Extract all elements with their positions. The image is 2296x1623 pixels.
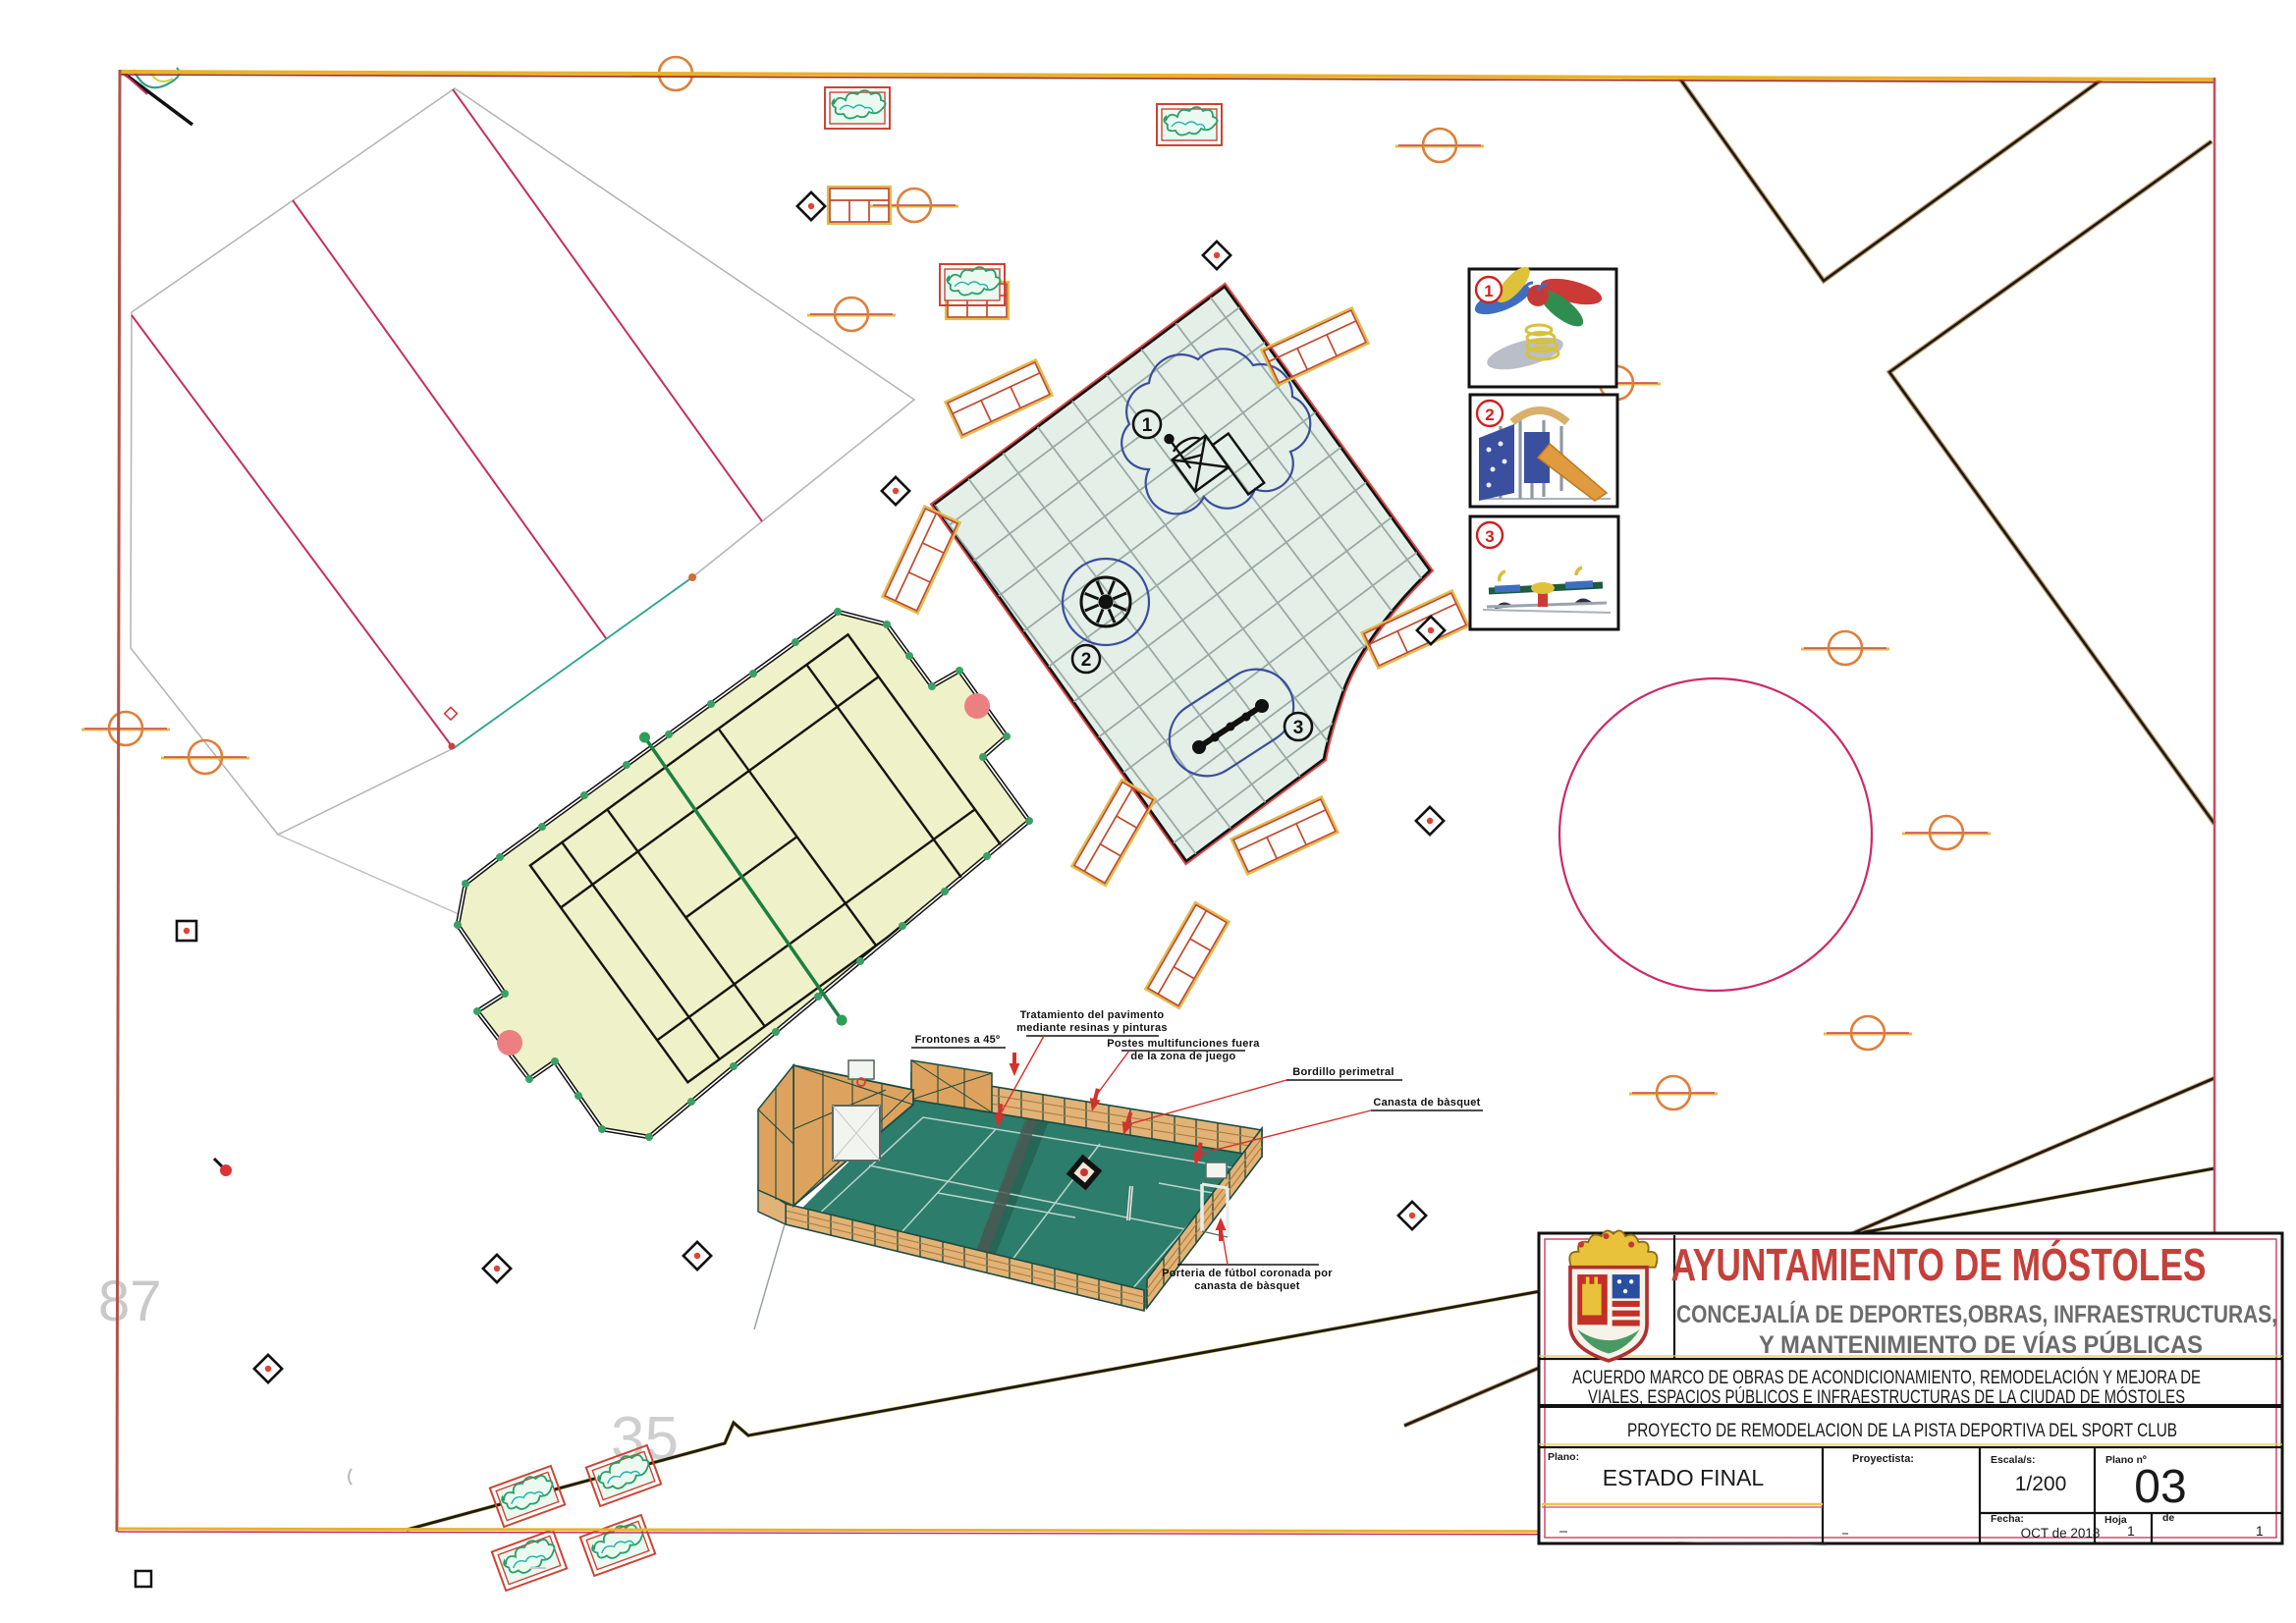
svg-text:Frontones a 45º: Frontones a 45º — [915, 1034, 1001, 1046]
svg-text:87: 87 — [98, 1270, 162, 1333]
svg-text:Bordillo perimetral: Bordillo perimetral — [1292, 1066, 1394, 1078]
svg-text:canasta de bàsquet: canasta de bàsquet — [1194, 1280, 1300, 1292]
svg-text:Plano:: Plano: — [1548, 1451, 1579, 1463]
svg-text:Fecha:: Fecha: — [1991, 1513, 2024, 1525]
svg-text:3: 3 — [1485, 527, 1494, 546]
svg-text:Canasta de bàsquet: Canasta de bàsquet — [1373, 1097, 1480, 1109]
svg-text:ACUERDO MARCO DE OBRAS DE ACON: ACUERDO MARCO DE OBRAS DE ACONDICIONAMIE… — [1572, 1367, 2201, 1388]
svg-text:1: 1 — [1142, 415, 1153, 436]
svg-text:Escala/s:: Escala/s: — [1991, 1454, 2036, 1466]
svg-text:Hoja: Hoja — [2105, 1514, 2127, 1526]
svg-text:Porteria de fútbol coronada po: Porteria de fútbol coronada por — [1162, 1268, 1333, 1279]
svg-text:VIALES, ESPACIOS PÚBLICOS E IN: VIALES, ESPACIOS PÚBLICOS E INFRAESTRUCT… — [1588, 1386, 2185, 1408]
svg-text:Postes multifunciones fuera: Postes multifunciones fuera — [1107, 1038, 1260, 1050]
svg-text:Tratamiento del pavimento: Tratamiento del pavimento — [1020, 1009, 1165, 1021]
svg-text:1: 1 — [2127, 1523, 2135, 1539]
svg-text:de la zona de juego: de la zona de juego — [1130, 1051, 1235, 1062]
svg-text:Y MANTENIMIENTO DE VÍAS PÚBLIC: Y MANTENIMIENTO DE VÍAS PÚBLICAS — [1759, 1329, 2203, 1359]
svg-text:ESTADO FINAL: ESTADO FINAL — [1603, 1465, 1765, 1490]
svg-text:03: 03 — [2134, 1461, 2186, 1513]
svg-text:CONCEJALÍA DE DEPORTES,OBRAS,: CONCEJALÍA DE DEPORTES,OBRAS, INFRAESTRU… — [1676, 1300, 2277, 1328]
svg-text:AYUNTAMIENTO DE MÓSTOLES: AYUNTAMIENTO DE MÓSTOLES — [1671, 1239, 2207, 1290]
svg-text:3: 3 — [1293, 718, 1304, 738]
svg-text:PROYECTO DE REMODELACION DE LA: PROYECTO DE REMODELACION DE LA PISTA DEP… — [1627, 1421, 2177, 1441]
svg-text:2: 2 — [1485, 406, 1494, 424]
svg-text:de: de — [2162, 1512, 2174, 1524]
svg-text:OCT de 2018: OCT de 2018 — [2021, 1526, 2101, 1541]
svg-text:1: 1 — [1484, 282, 1493, 300]
svg-text:1: 1 — [2256, 1523, 2264, 1539]
svg-text:mediante resinas y pinturas: mediante resinas y pinturas — [1016, 1022, 1168, 1034]
svg-text:Proyectista:: Proyectista: — [1852, 1453, 1914, 1465]
svg-text:1/200: 1/200 — [2015, 1473, 2067, 1495]
svg-text:2: 2 — [1081, 650, 1092, 671]
